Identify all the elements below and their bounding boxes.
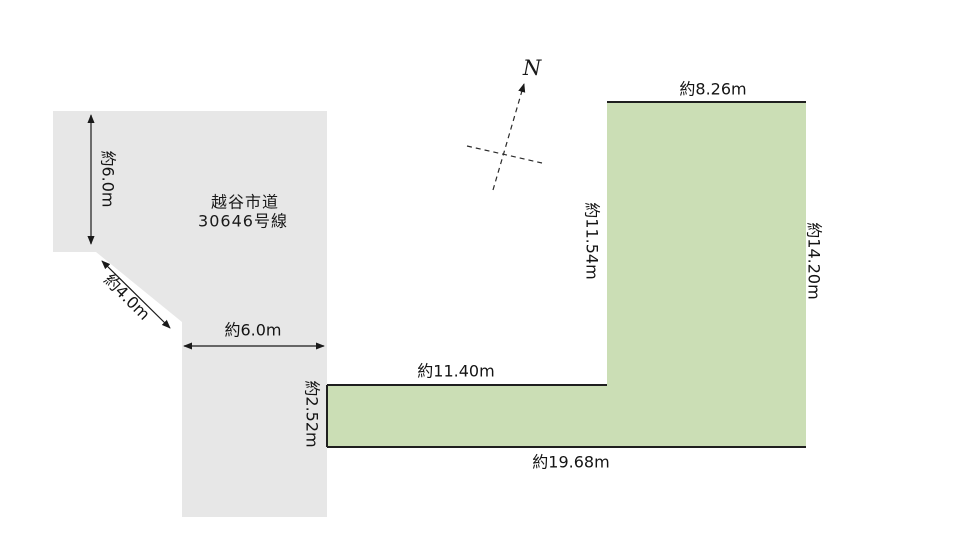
north-arrow — [493, 84, 524, 190]
road-name-line2: 30646号線 — [198, 212, 288, 231]
land-plot-area — [327, 102, 806, 447]
north-indicator: N — [467, 56, 542, 190]
road-west-width-label: 約6.0m — [99, 150, 118, 207]
road-area — [53, 111, 327, 517]
north-label: N — [522, 56, 542, 80]
site-plan-drawing: N 越谷市道 30646号線 約6.0m 約4.0m 約6.0m 約8.26m … — [0, 0, 960, 540]
north-cross-line — [467, 146, 542, 163]
plot-west-upper-edge-label: 約11.54m — [583, 202, 602, 279]
plot-north-edge-label: 約8.26m — [679, 80, 746, 99]
plot-step-edge-label: 約11.40m — [417, 362, 494, 381]
road-south-width-label: 約6.0m — [224, 321, 281, 340]
road-name-line1: 越谷市道 — [211, 193, 279, 212]
site-plan: N 越谷市道 30646号線 約6.0m 約4.0m 約6.0m 約8.26m … — [0, 0, 960, 540]
plot-east-edge-label: 約14.20m — [805, 222, 824, 299]
plot-south-edge-label: 約19.68m — [532, 453, 609, 472]
plot-west-lower-edge-label: 約2.52m — [303, 380, 322, 447]
